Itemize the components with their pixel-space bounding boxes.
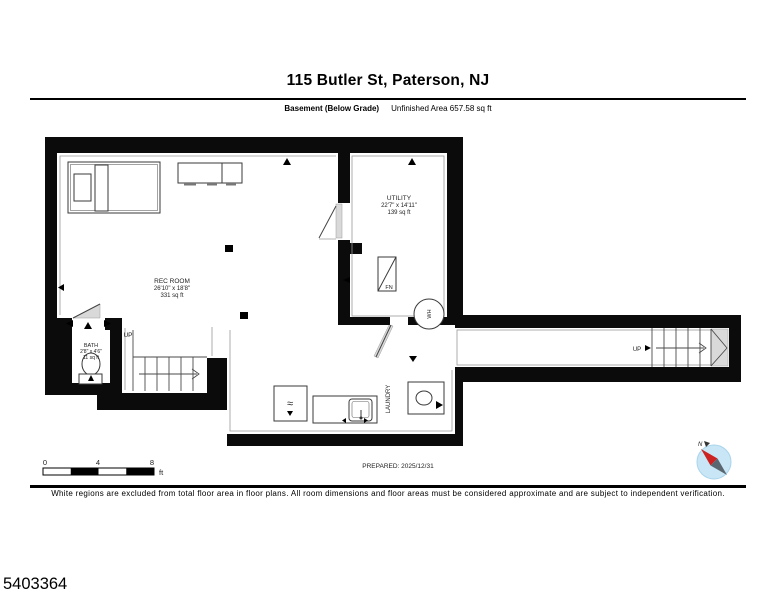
scale-unit: ft — [159, 468, 164, 477]
utility-dims: 22'7" x 14'11" — [381, 203, 417, 209]
laundry-counter-sink — [313, 396, 377, 423]
bed-pillow — [74, 174, 91, 201]
water-heater: WH — [414, 299, 444, 329]
bed-divider — [95, 165, 108, 211]
footer-divider — [30, 485, 746, 488]
rec-room-area: 331 sq ft — [160, 293, 183, 299]
laundry-name: LAUNDRY — [386, 385, 392, 414]
utility-name: UTILITY — [387, 195, 412, 202]
bath-area: 11 sq ft — [83, 355, 100, 361]
bed — [68, 162, 160, 213]
rec-room-name: REC ROOM — [154, 278, 190, 285]
disclaimer-text: White regions are excluded from total fl… — [0, 489, 776, 498]
stair-nook-floor — [122, 325, 207, 393]
rec-room-dims: 26'10" x 18'8" — [154, 286, 190, 292]
dressers — [178, 163, 242, 186]
laundry-toilet — [408, 382, 444, 414]
up-label-right: UP — [633, 347, 641, 353]
stair-winder — [711, 329, 728, 366]
washer: ≈ — [274, 386, 307, 421]
scale-tick-8: 8 — [150, 458, 154, 467]
passage-floor — [207, 325, 227, 358]
floorplan-page: 115 Butler St, Paterson, NJ Basement (Be… — [0, 0, 776, 600]
up-label-left: UP — [123, 332, 132, 339]
floorplan-drawing: FN WH ≈ — [0, 0, 776, 600]
compass-north-label: N — [698, 442, 703, 448]
compass: N — [697, 441, 731, 479]
furnace: FN — [378, 257, 396, 291]
scale-bar: 0 4 8 ft — [43, 458, 164, 477]
prepared-date: PREPARED: 2025/12/31 — [362, 463, 434, 470]
svg-text:≈: ≈ — [287, 398, 293, 410]
utility-area: 139 sq ft — [387, 210, 410, 216]
scale-tick-0: 0 — [43, 458, 47, 467]
furnace-label: FN — [385, 285, 392, 291]
water-heater-label: WH — [427, 309, 433, 318]
scale-tick-4: 4 — [96, 458, 100, 467]
mls-number: 5403364 — [3, 575, 67, 594]
